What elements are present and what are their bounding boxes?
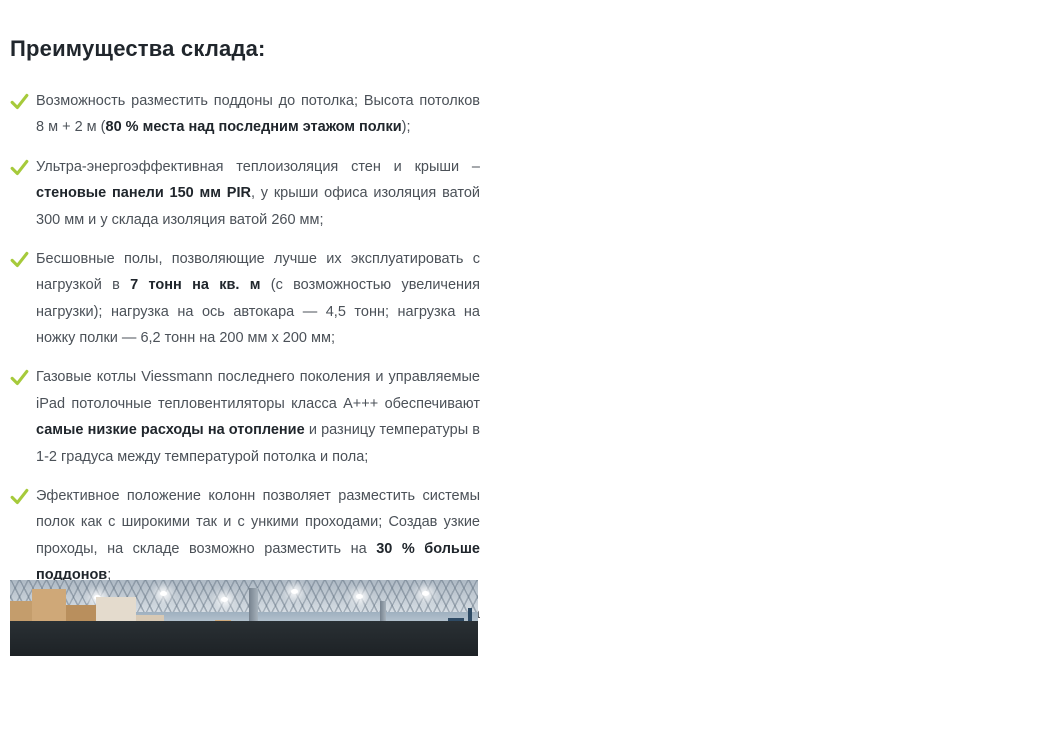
advantage-text-bold: 80 % места над последним этажом полки: [106, 119, 402, 135]
warehouse-photo: Разделение складских помещений 1-й этаж: [10, 580, 478, 656]
advantages-list: Возможность разместить поддоны до потолк…: [10, 88, 480, 654]
advantage-text: Газовые котлы Viessmann последнего покол…: [36, 369, 480, 411]
advantage-text-bold: самые низкие расходы на отопление: [36, 422, 305, 438]
advantage-item: Эфективное положение колонн позволяет ра…: [10, 483, 480, 589]
page: Преимущества склада: Возможность размест…: [0, 0, 1049, 753]
advantage-item: Газовые котлы Viessmann последнего покол…: [10, 364, 480, 470]
advantage-text: );: [402, 119, 411, 135]
advantage-item: Бесшовные полы, позволяющие лучше их экс…: [10, 246, 480, 352]
advantage-text-bold: стеновые панели 150 мм PIR: [36, 185, 251, 201]
ceiling-light-icon: [221, 597, 228, 602]
footer-bar: [10, 621, 478, 656]
check-icon: [10, 368, 29, 387]
advantage-item: Возможность разместить поддоны до потолк…: [10, 88, 480, 141]
ceiling-light-icon: [291, 589, 298, 594]
advantage-item: Ультра-энергоэффективная теплоизоляция с…: [10, 154, 480, 233]
ceiling-light-icon: [356, 594, 363, 599]
check-icon: [10, 158, 29, 177]
advantage-text-bold: 7 тонн на кв. м: [130, 277, 260, 293]
advantage-text: Ультра-энергоэффективная теплоизоляция с…: [36, 159, 480, 175]
check-icon: [10, 92, 29, 111]
check-icon: [10, 487, 29, 506]
ceiling-light-icon: [160, 591, 167, 596]
check-icon: [10, 250, 29, 269]
advantages-title: Преимущества склада:: [10, 36, 480, 62]
advantages-section: Преимущества склада: Возможность размест…: [10, 36, 480, 667]
